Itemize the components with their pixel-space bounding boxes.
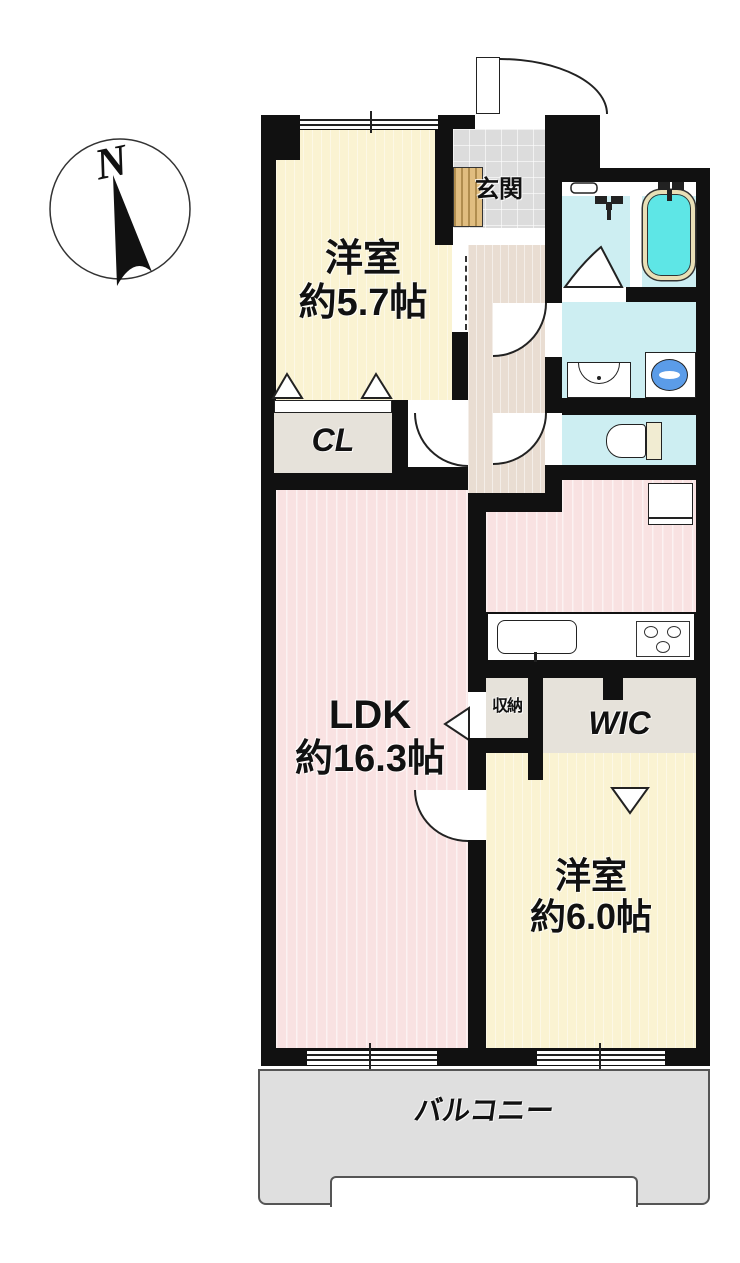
toilet-tank [646,422,662,460]
entrance-door-swing [500,58,608,114]
window-room2-bottom [537,1051,665,1065]
wall-hall-bottom [468,493,562,512]
floor-plan-canvas: N CL 玄関 [0,0,740,1263]
wall-below-entry [408,467,468,490]
washing-machine-pan [645,352,696,398]
closet-door [274,400,392,413]
hall-threshold [408,400,468,413]
closet-door-marks [270,370,400,402]
bathroom-door-mark [563,244,625,288]
western-room-1-label: 洋室 約5.7帖 [270,238,456,325]
western-room-2-label: 洋室 約6.0帖 [486,855,696,938]
storage-label: 収納 [484,698,530,716]
corner-pillar [276,130,300,160]
wic-wall-stub [603,678,623,700]
bath-fixtures [562,180,702,225]
kitchen-tap [534,652,537,662]
balcony-notch [330,1176,638,1207]
compass-north-label: N [90,134,134,189]
wic-door-mark [610,786,650,816]
entrance-step [453,228,545,245]
kitchen-sink [497,620,577,654]
wic-label: WIC [543,705,696,742]
ldk-floor-mid [486,512,562,612]
balcony-label: バルコニー [256,1095,713,1127]
entrance-door-leaf [476,57,500,114]
bath-threshold [562,287,626,302]
room2-door-opening [468,790,486,840]
toilet-door-opening [545,413,562,465]
ldk-label: LDK 約16.3帖 [272,692,468,782]
room1-sliding-door-track [465,256,467,330]
toilet-bowl [606,424,646,458]
wall-wic-left-lower [528,753,543,780]
closet-cl-label: CL [274,422,392,459]
window-ldk-bottom [307,1051,437,1065]
wall-ldk-room2 [468,738,486,1048]
stove [636,621,690,657]
refrigerator-space [648,483,693,525]
entrance-label: 玄関 [453,176,545,204]
washbasin [567,362,631,398]
compass-needle [113,175,152,286]
compass: N [40,125,210,300]
washroom-door-opening [545,303,562,357]
wall-cl-bottom [261,473,408,490]
window-room1-top [300,115,438,129]
entrance-door-opening [475,115,545,129]
wall-room1-entrance [435,130,452,245]
